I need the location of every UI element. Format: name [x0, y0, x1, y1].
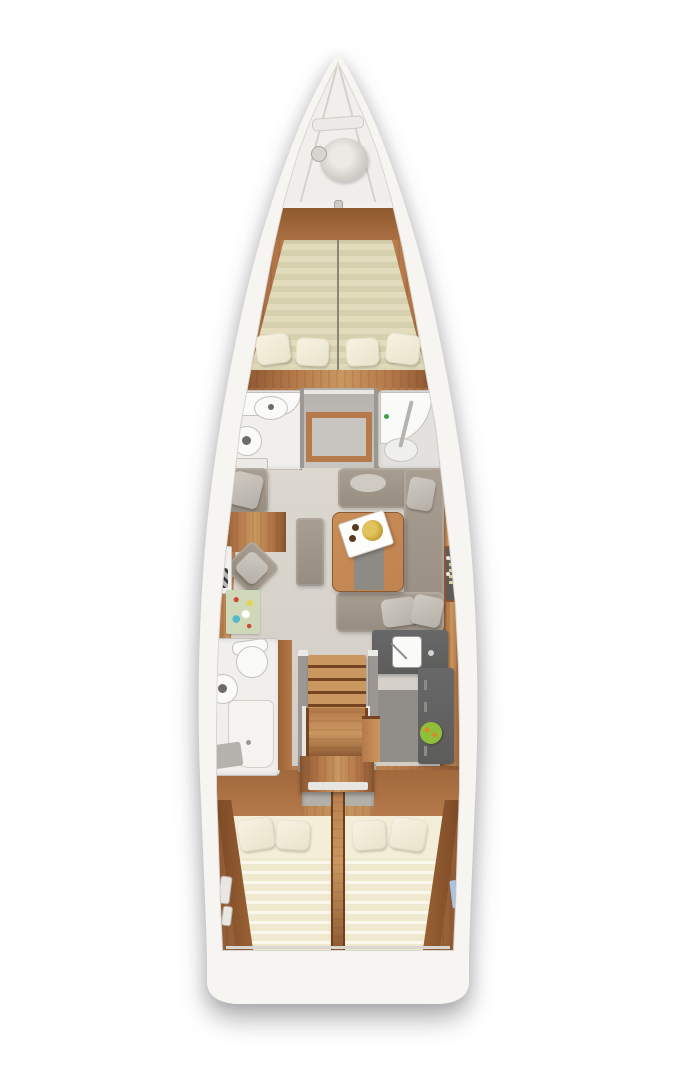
u-sofa-back-cushion	[350, 474, 386, 492]
vberth-footboard	[240, 370, 436, 388]
port-aft-pillow-2	[275, 819, 311, 851]
anchor-rope-coil	[320, 138, 368, 182]
galley-handles	[424, 676, 427, 756]
tray-cup-2	[349, 535, 356, 542]
port-head-toilet-seat	[242, 436, 251, 445]
aft-head-washbasin	[236, 646, 268, 678]
stbd-aft-pillow-2	[388, 815, 429, 852]
u-sofa-pillow-3	[409, 593, 445, 629]
yacht-floorplan-canvas	[0, 0, 675, 1080]
aft-head-drain	[246, 740, 251, 745]
stbd-head-accent	[384, 414, 389, 419]
vberth-pillow-3	[345, 337, 379, 367]
area-rug	[226, 590, 260, 634]
port-head-basin-drain	[268, 404, 274, 410]
bar-knob-1	[446, 556, 450, 560]
aft-head-toilet-seat	[218, 684, 227, 693]
transom-seam	[226, 946, 450, 949]
stair-wall-port-cap	[298, 650, 308, 656]
aft-cabin-divider	[331, 770, 345, 956]
vberth-divider	[337, 240, 339, 372]
vberth-pillow-1	[254, 332, 291, 366]
sole-strip	[308, 782, 368, 790]
wardrobe-opening	[306, 412, 372, 462]
stair-side-bench	[362, 716, 380, 762]
stair-mid-section	[306, 708, 368, 758]
stair-wall-stbd-cap	[368, 650, 378, 656]
u-sofa-pillow-1	[405, 476, 436, 512]
vberth-pillow-4	[384, 332, 421, 366]
galley-sink	[392, 636, 422, 668]
stbd-aft-pillow-1	[351, 819, 387, 851]
aft-head-wood-trim	[278, 640, 292, 770]
fruit-bowl	[420, 722, 442, 744]
vberth-pillow-2	[295, 337, 329, 367]
passage-top-trim	[304, 390, 374, 394]
stair-treads-upper	[308, 655, 366, 711]
galley-knob	[428, 650, 434, 656]
port-aft-pillow-1	[236, 815, 277, 852]
rope-coil-knob	[311, 146, 327, 162]
ottoman-bench	[296, 518, 324, 586]
bar-knob-2	[446, 572, 450, 576]
tray-cup-1	[352, 524, 359, 531]
